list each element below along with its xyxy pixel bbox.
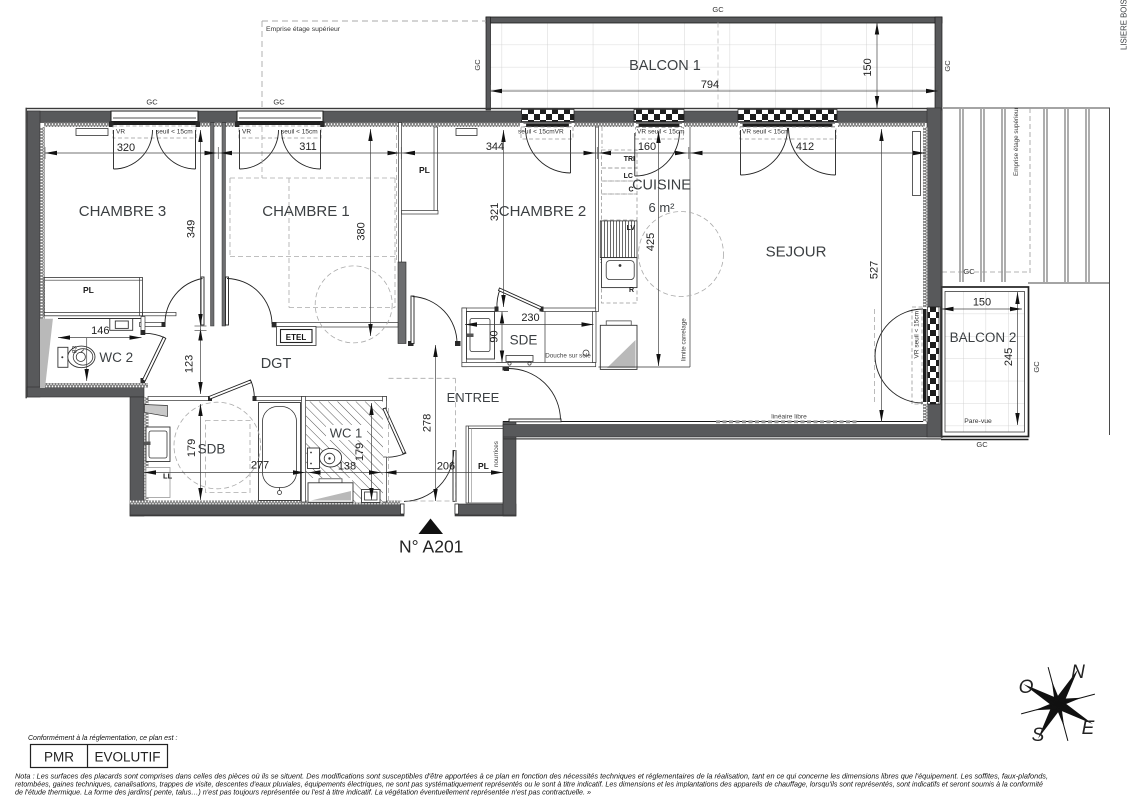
svg-text:WC 2: WC 2 [99, 350, 133, 365]
svg-text:CHAMBRE 3: CHAMBRE 3 [79, 203, 167, 220]
svg-text:PL: PL [419, 165, 430, 175]
svg-text:230: 230 [521, 312, 539, 324]
svg-text:VR: VR [116, 129, 125, 136]
svg-text:278: 278 [422, 414, 434, 432]
svg-text:527: 527 [869, 261, 881, 279]
svg-text:GC: GC [1032, 361, 1041, 373]
svg-text:R: R [629, 287, 634, 294]
svg-text:SDE: SDE [510, 333, 538, 348]
svg-text:206: 206 [437, 461, 455, 473]
svg-text:GC: GC [943, 60, 952, 72]
svg-text:ENTREE: ENTREE [447, 390, 500, 405]
svg-text:Pare-vue: Pare-vue [964, 418, 992, 425]
svg-text:GC: GC [963, 267, 975, 276]
svg-text:320: 320 [117, 142, 135, 154]
svg-text:277: 277 [251, 460, 269, 472]
svg-text:GC: GC [473, 59, 482, 71]
svg-text:150: 150 [973, 297, 991, 309]
svg-text:GC: GC [273, 98, 285, 107]
svg-text:VR: VR [242, 129, 251, 136]
svg-text:160: 160 [638, 141, 656, 153]
svg-text:SDB: SDB [198, 442, 226, 457]
svg-text:VR seuil < 15cm: VR seuil < 15cm [742, 129, 790, 136]
svg-text:PL: PL [478, 461, 489, 471]
svg-text:BALCON 1: BALCON 1 [629, 58, 701, 74]
svg-text:N: N [1071, 662, 1085, 683]
svg-text:311: 311 [299, 141, 317, 153]
svg-text:CHAMBRE 1: CHAMBRE 1 [262, 203, 350, 220]
svg-text:179: 179 [186, 439, 198, 457]
svg-text:WC 1: WC 1 [330, 426, 363, 441]
svg-text:CHAMBRE 2: CHAMBRE 2 [499, 203, 587, 220]
svg-text:123: 123 [184, 355, 196, 373]
svg-text:seuil < 15cm: seuil < 15cm [156, 129, 193, 136]
svg-text:90: 90 [489, 330, 501, 342]
svg-text:E: E [1082, 718, 1095, 739]
svg-text:380: 380 [356, 222, 368, 240]
svg-text:Emprise étage supérieur: Emprise étage supérieur [1013, 107, 1020, 176]
svg-text:GC: GC [712, 5, 724, 14]
svg-text:de l'étude thermique. La forme: de l'étude thermique. La forme des jardi… [15, 788, 591, 797]
svg-text:321: 321 [489, 203, 501, 221]
svg-text:GC: GC [146, 98, 158, 107]
svg-text:349: 349 [186, 220, 198, 238]
svg-text:LISIERE BOIS: LISIERE BOIS [1120, 0, 1129, 50]
svg-text:83: 83 [72, 346, 79, 354]
svg-text:nourrices: nourrices [493, 441, 500, 467]
svg-text:SEJOUR: SEJOUR [766, 244, 827, 261]
svg-text:TRI: TRI [624, 156, 635, 163]
svg-text:GC: GC [976, 440, 988, 449]
svg-text:245: 245 [1003, 348, 1015, 366]
svg-text:seuil < 15cm: seuil < 15cm [281, 129, 318, 136]
svg-text:412: 412 [796, 141, 814, 153]
svg-text:VR seuil < 15cm: VR seuil < 15cm [914, 311, 921, 359]
svg-text:limite carrelage: limite carrelage [681, 318, 688, 361]
svg-text:CUISINE: CUISINE [632, 178, 691, 194]
svg-text:DGT: DGT [261, 356, 292, 372]
svg-text:LV: LV [627, 225, 636, 232]
svg-text:179: 179 [354, 443, 366, 461]
svg-text:146: 146 [91, 325, 109, 337]
svg-text:linéaire libre: linéaire libre [771, 414, 807, 421]
svg-text:344: 344 [486, 141, 504, 153]
svg-text:150: 150 [862, 58, 874, 76]
svg-text:PL: PL [83, 285, 94, 295]
svg-text:Douche sur sole: Douche sur sole [545, 353, 591, 360]
svg-text:6 m²: 6 m² [649, 200, 676, 215]
svg-text:VR seuil < 15cm: VR seuil < 15cm [637, 129, 685, 136]
svg-text:S: S [1032, 725, 1045, 746]
svg-text:138: 138 [338, 461, 356, 473]
svg-text:Emprise étage supérieur: Emprise étage supérieur [266, 26, 341, 33]
svg-text:O: O [1019, 677, 1034, 698]
svg-text:EVOLUTIF: EVOLUTIF [94, 750, 160, 765]
svg-text:425: 425 [645, 233, 657, 251]
svg-text:ETEL: ETEL [286, 333, 307, 342]
svg-text:seuil < 15cmVR: seuil < 15cmVR [518, 129, 564, 136]
svg-text:BALCON 2: BALCON 2 [950, 330, 1017, 345]
svg-text:N° A201: N° A201 [399, 537, 463, 557]
svg-text:Conformément à la réglementati: Conformément à la réglementation, ce pla… [28, 735, 177, 742]
svg-text:PMR: PMR [44, 750, 74, 765]
